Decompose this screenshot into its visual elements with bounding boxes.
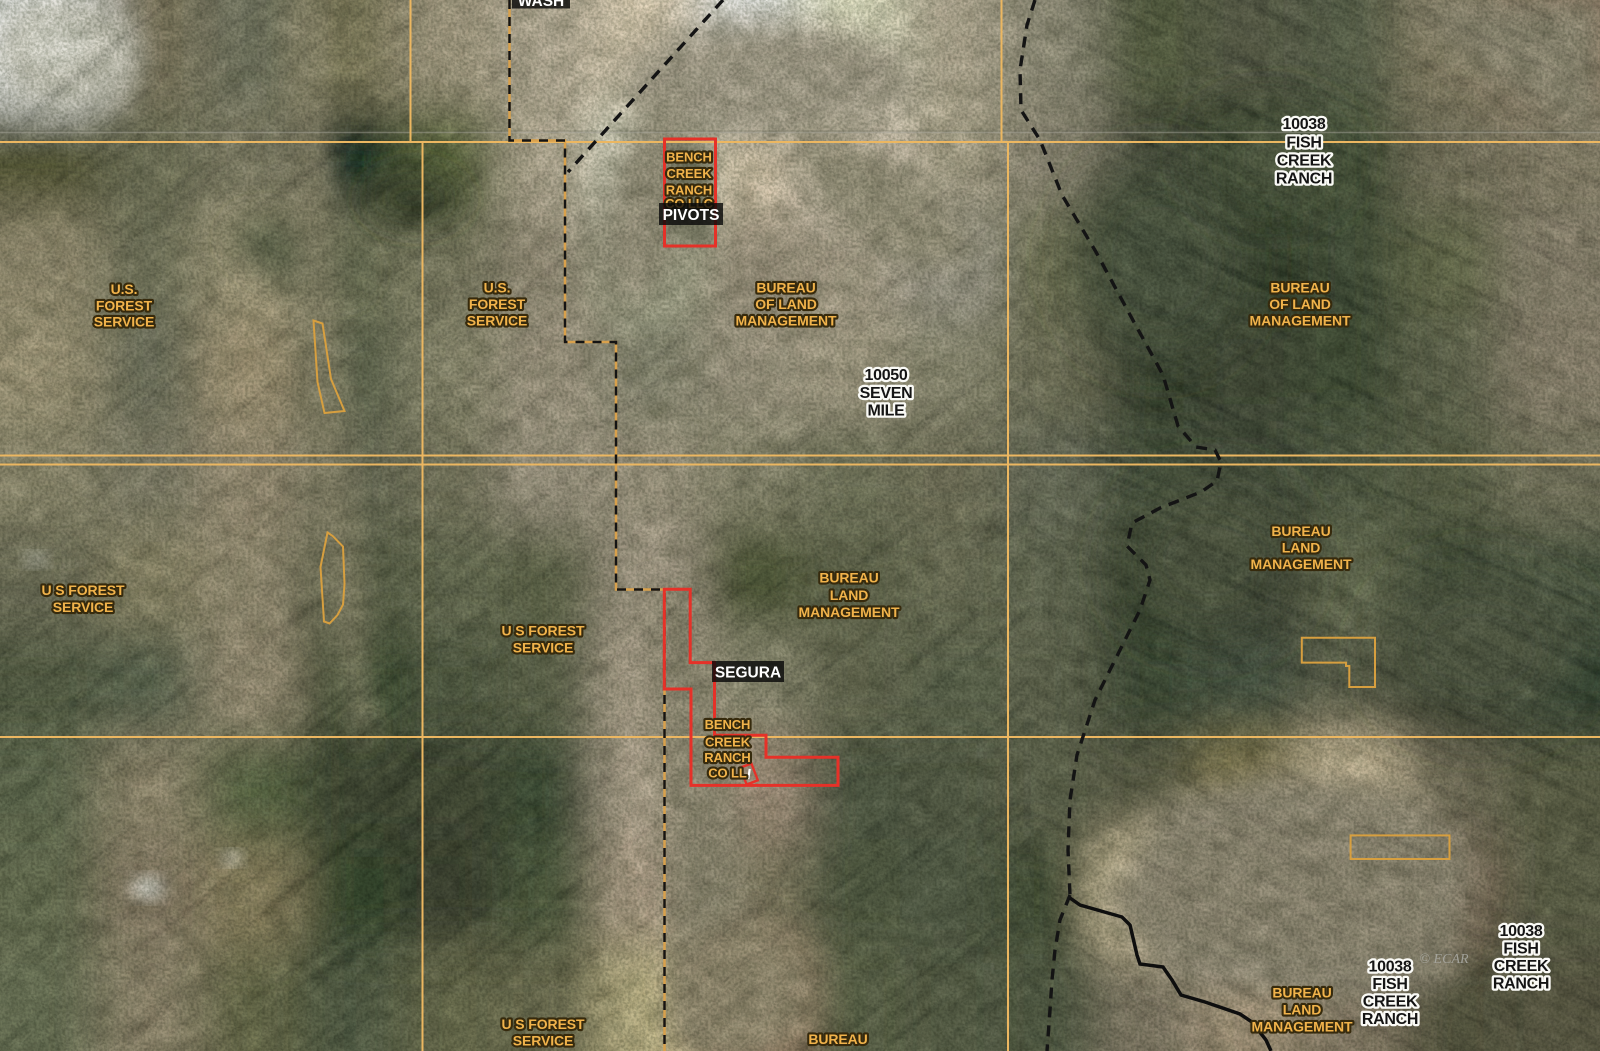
svg-text:FISH: FISH — [1372, 976, 1407, 993]
svg-text:SERVICE: SERVICE — [513, 1033, 574, 1049]
svg-text:CREEK: CREEK — [705, 735, 751, 750]
svg-text:CREEK: CREEK — [666, 166, 712, 181]
svg-text:CO LL: CO LL — [708, 766, 747, 781]
svg-text:BENCH: BENCH — [705, 717, 751, 732]
svg-text:WASH: WASH — [518, 0, 565, 10]
svg-text:OF LAND: OF LAND — [1269, 296, 1331, 312]
svg-text:SERVICE: SERVICE — [513, 640, 574, 656]
svg-text:MANAGEMENT: MANAGEMENT — [799, 604, 900, 620]
svg-text:BUREAU: BUREAU — [756, 280, 815, 296]
svg-text:FISH: FISH — [1503, 941, 1538, 958]
svg-text:OF LAND: OF LAND — [755, 296, 817, 312]
svg-text:MANAGEMENT: MANAGEMENT — [1251, 556, 1352, 572]
svg-text:BUREAU: BUREAU — [819, 570, 878, 586]
svg-text:© ECAR: © ECAR — [1419, 952, 1469, 967]
svg-text:SERVICE: SERVICE — [53, 599, 114, 615]
svg-text:RANCH: RANCH — [1276, 171, 1332, 188]
svg-text:SERVICE: SERVICE — [467, 313, 528, 329]
svg-text:SERVICE: SERVICE — [94, 314, 155, 330]
svg-text:BENCH: BENCH — [666, 150, 712, 165]
svg-text:BUREAU: BUREAU — [808, 1031, 867, 1047]
svg-text:U S FOREST: U S FOREST — [41, 582, 125, 598]
svg-text:RANCH: RANCH — [704, 750, 750, 765]
svg-text:BUREAU: BUREAU — [1271, 523, 1330, 539]
svg-text:MANAGEMENT: MANAGEMENT — [736, 313, 837, 329]
svg-text:BUREAU: BUREAU — [1272, 985, 1331, 1001]
svg-text:SEVEN: SEVEN — [860, 385, 913, 402]
svg-text:U.S.: U.S. — [111, 281, 138, 297]
svg-text:10038: 10038 — [1283, 116, 1326, 133]
svg-text:LAND: LAND — [1283, 1002, 1321, 1018]
svg-text:LAND: LAND — [1282, 540, 1320, 556]
svg-text:CREEK: CREEK — [1363, 994, 1418, 1011]
svg-text:10050: 10050 — [865, 367, 908, 384]
svg-text:FOREST: FOREST — [96, 298, 153, 314]
svg-text:CREEK: CREEK — [1494, 958, 1549, 975]
svg-text:10038: 10038 — [1369, 959, 1412, 976]
svg-text:U S FOREST: U S FOREST — [501, 623, 585, 639]
svg-text:MANAGEMENT: MANAGEMENT — [1252, 1019, 1353, 1035]
svg-text:PIVOTS: PIVOTS — [663, 207, 720, 224]
svg-text:U S FOREST: U S FOREST — [501, 1016, 585, 1032]
svg-text:CREEK: CREEK — [1277, 153, 1332, 170]
svg-text:U.S.: U.S. — [484, 280, 511, 296]
svg-text:SEGURA: SEGURA — [715, 665, 781, 682]
svg-text:RANCH: RANCH — [1362, 1011, 1418, 1028]
svg-text:FOREST: FOREST — [469, 296, 526, 312]
svg-text:MANAGEMENT: MANAGEMENT — [1250, 313, 1351, 329]
svg-text:MILE: MILE — [867, 403, 905, 420]
svg-text:10038: 10038 — [1500, 923, 1543, 940]
svg-text:RANCH: RANCH — [1493, 976, 1549, 993]
svg-text:LAND: LAND — [830, 587, 868, 603]
svg-text:FISH: FISH — [1286, 135, 1321, 152]
svg-text:BUREAU: BUREAU — [1270, 280, 1329, 296]
